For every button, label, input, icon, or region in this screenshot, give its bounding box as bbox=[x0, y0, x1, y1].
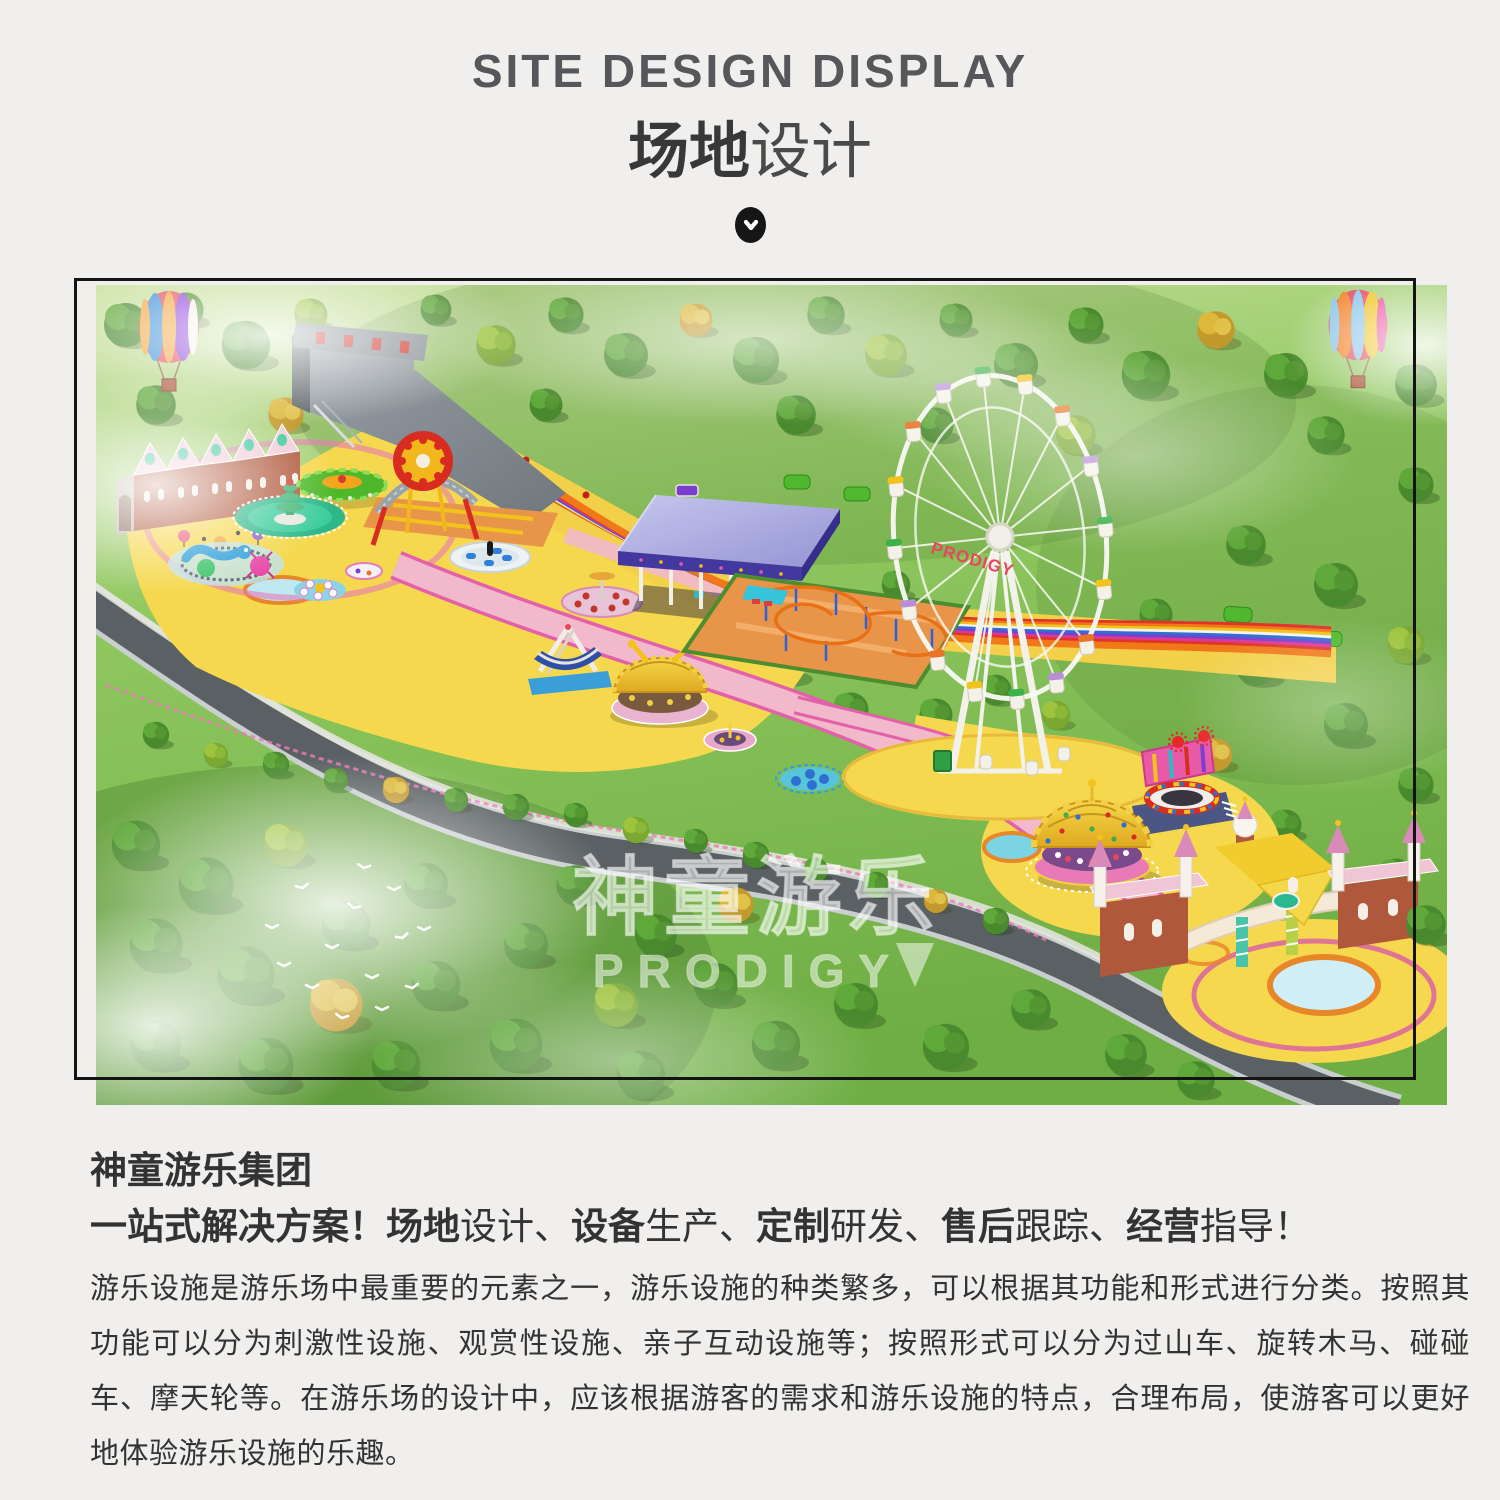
teacup-ride bbox=[294, 579, 346, 601]
intro-paragraph: 游乐设施是游乐场中最重要的元素之一，游乐设施的种类繁多，可以根据其功能和形式进行… bbox=[90, 1262, 1470, 1482]
intro-subtitle: 一站式解决方案！场地设计、设备生产、定制研发、售后跟踪、经营指导！ bbox=[90, 1206, 1311, 1247]
intro-heading: 神童游乐集团 一站式解决方案！场地设计、设备生产、定制研发、售后跟踪、经营指导！ bbox=[90, 1143, 1480, 1255]
section-title-en: SITE DESIGN DISPLAY bbox=[0, 44, 1500, 98]
mini-canopy-ride bbox=[346, 563, 382, 579]
park-site-plan-image: PRODIGY bbox=[96, 285, 1447, 1105]
section-title-zh: 场地设计 bbox=[0, 116, 1500, 186]
section-title-zh-bold: 场地 bbox=[628, 117, 750, 185]
chevron-down-icon[interactable] bbox=[735, 207, 766, 243]
octopus-ride bbox=[776, 765, 844, 793]
chevron-down-glyph bbox=[741, 215, 761, 235]
section-title-zh-light: 设计 bbox=[750, 117, 872, 185]
watermark-chinese: 神童游乐 bbox=[572, 850, 940, 946]
bumper-car-platform bbox=[450, 541, 530, 572]
watermark-latin: PRODIGY bbox=[593, 945, 903, 997]
watermark: 神童游乐 PRODIGY bbox=[572, 850, 940, 997]
company-name: 神童游乐集团 bbox=[90, 1143, 1480, 1199]
